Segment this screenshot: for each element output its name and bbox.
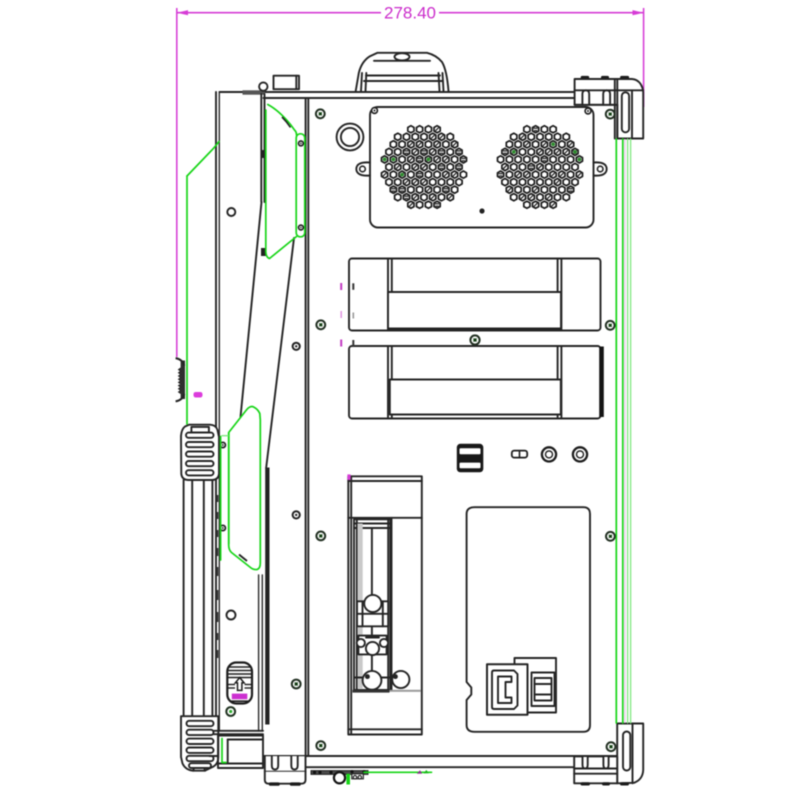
svg-text:278.40: 278.40 [384, 4, 436, 23]
